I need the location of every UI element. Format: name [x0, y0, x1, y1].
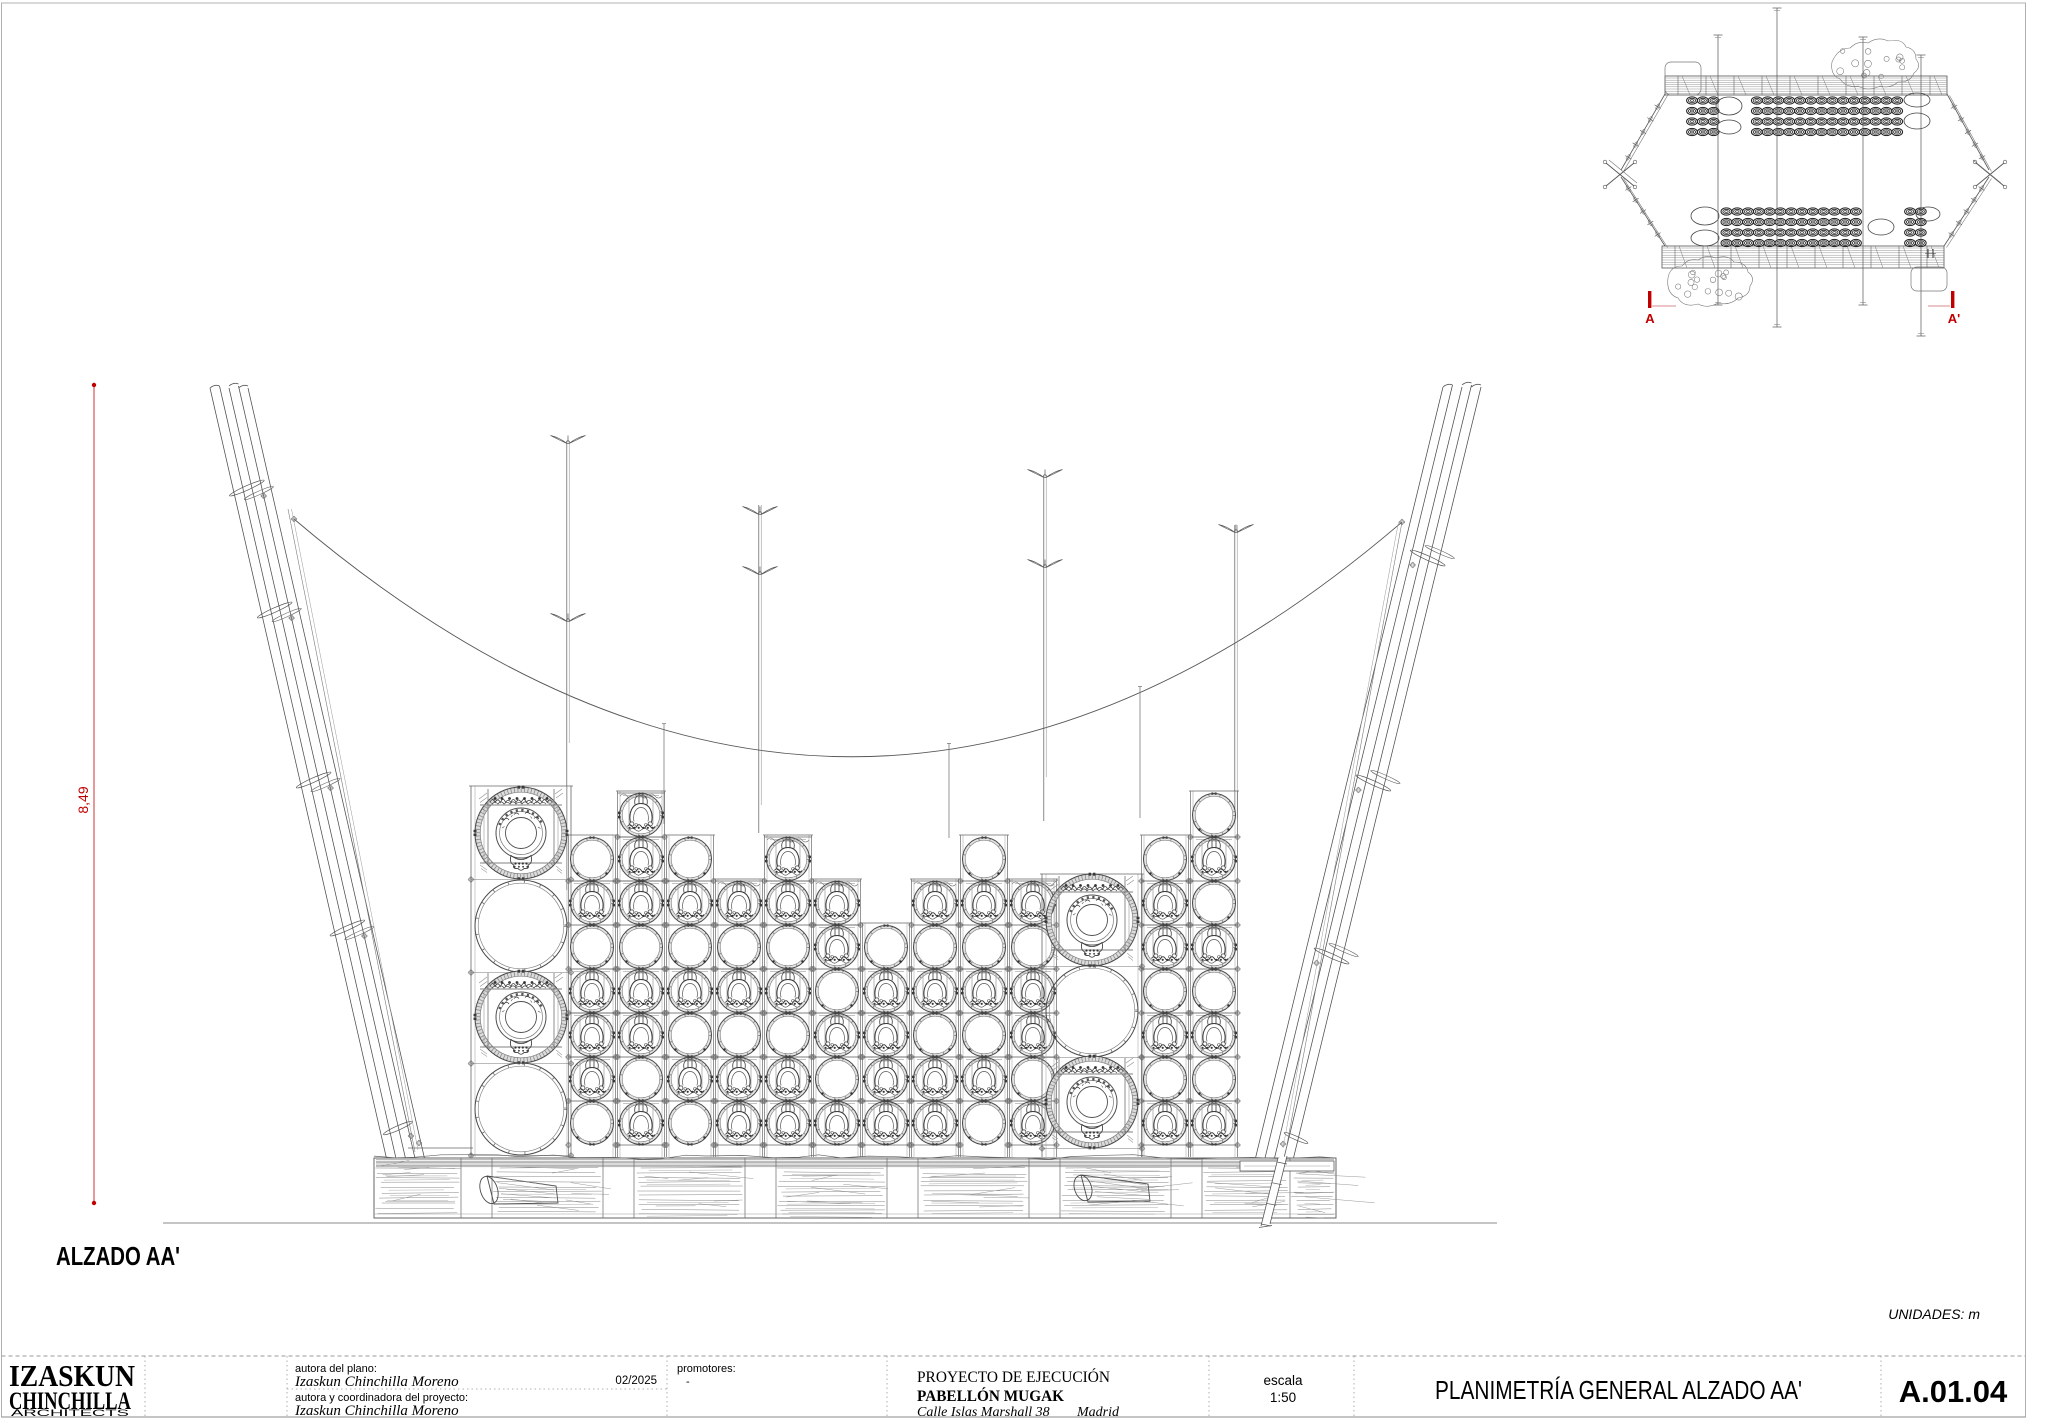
svg-text:Calle Islas Marshall 38: Calle Islas Marshall 38 [917, 1405, 1050, 1420]
svg-text:ARCHITECTS: ARCHITECTS [11, 1408, 129, 1419]
svg-text:Madrid: Madrid [1076, 1405, 1120, 1420]
svg-text:PROYECTO DE EJECUCIÓN: PROYECTO DE EJECUCIÓN [917, 1367, 1110, 1386]
svg-text:UNIDADES: m: UNIDADES: m [1888, 1306, 1980, 1322]
svg-text:8,49: 8,49 [75, 786, 91, 813]
svg-text:PLANIMETRÍA GENERAL ALZADO AA': PLANIMETRÍA GENERAL ALZADO AA' [1435, 1375, 1802, 1405]
svg-text:ALZADO AA': ALZADO AA' [56, 1241, 180, 1271]
svg-text:Izaskun Chinchilla Moreno: Izaskun Chinchilla Moreno [294, 1403, 459, 1419]
svg-text:-: - [686, 1376, 690, 1388]
svg-text:02/2025: 02/2025 [615, 1375, 657, 1387]
svg-text:1:50: 1:50 [1270, 1390, 1296, 1405]
svg-text:A': A' [1948, 311, 1960, 326]
svg-text:promotores:: promotores: [677, 1363, 736, 1375]
svg-text:Izaskun Chinchilla Moreno: Izaskun Chinchilla Moreno [294, 1374, 459, 1390]
svg-text:escala: escala [1263, 1373, 1303, 1388]
svg-text:A: A [1645, 311, 1655, 326]
svg-text:A.01.04: A.01.04 [1899, 1374, 2008, 1409]
svg-text:PABELLÓN MUGAK: PABELLÓN MUGAK [917, 1386, 1065, 1405]
